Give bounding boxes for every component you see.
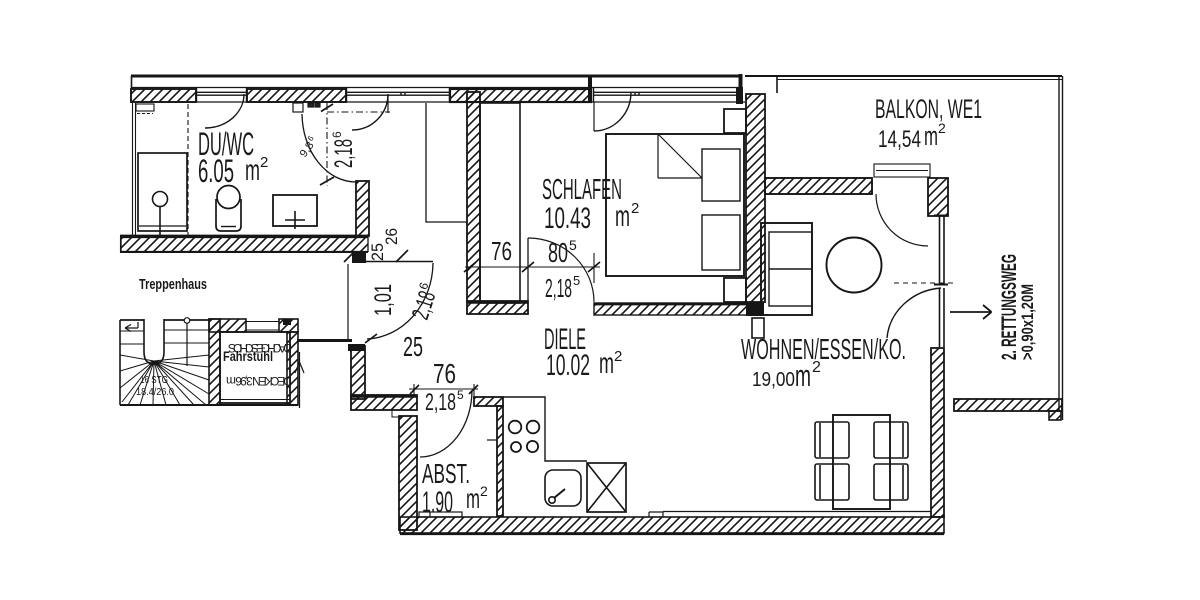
svg-text:10.02: 10.02 bbox=[546, 349, 590, 382]
svg-text:BALKON, WE1: BALKON, WE1 bbox=[875, 94, 982, 124]
svg-text:2,18: 2,18 bbox=[330, 139, 358, 168]
svg-text:2: 2 bbox=[812, 359, 821, 376]
svg-text:Treppenhaus: Treppenhaus bbox=[139, 276, 207, 293]
svg-text:2: 2 bbox=[631, 200, 639, 217]
svg-text:Fahrstuhl: Fahrstuhl bbox=[223, 348, 273, 364]
svg-text:>0,90x1,20M: >0,90x1,20M bbox=[1018, 284, 1037, 360]
svg-text:18.4/26.0: 18.4/26.0 bbox=[136, 387, 174, 398]
svg-text:2: 2 bbox=[480, 483, 488, 499]
svg-text:5: 5 bbox=[569, 237, 577, 253]
svg-text:76: 76 bbox=[433, 358, 456, 389]
svg-text:5: 5 bbox=[573, 273, 580, 288]
svg-text:ABST.: ABST. bbox=[422, 458, 470, 489]
svg-text:80: 80 bbox=[548, 237, 568, 268]
svg-text:1,01: 1,01 bbox=[370, 284, 397, 316]
svg-text:2: 2 bbox=[614, 348, 622, 365]
svg-text:2,18: 2,18 bbox=[545, 273, 572, 303]
svg-text:14,54: 14,54 bbox=[878, 126, 921, 153]
svg-text:1.90: 1.90 bbox=[422, 486, 453, 519]
svg-text:26: 26 bbox=[382, 228, 401, 245]
svg-text:6: 6 bbox=[330, 131, 344, 138]
svg-text:19,00: 19,00 bbox=[752, 369, 795, 391]
svg-text:m: m bbox=[615, 200, 630, 233]
svg-text:DECKEN 3,96 m: DECKEN 3,96 m bbox=[226, 374, 292, 388]
svg-text:2,18: 2,18 bbox=[425, 389, 456, 416]
svg-text:m: m bbox=[599, 347, 614, 380]
svg-text:m: m bbox=[466, 483, 480, 514]
svg-text:10.43: 10.43 bbox=[544, 202, 591, 235]
svg-text:5: 5 bbox=[457, 388, 464, 402]
svg-text:16 STG: 16 STG bbox=[140, 375, 168, 386]
svg-text:2: 2 bbox=[260, 154, 268, 171]
svg-text:m: m bbox=[924, 121, 938, 151]
svg-text:25: 25 bbox=[403, 331, 423, 362]
svg-text:76: 76 bbox=[491, 236, 512, 266]
svg-text:2: 2 bbox=[938, 120, 946, 136]
svg-text:m: m bbox=[795, 358, 811, 393]
svg-text:WOHNEN/ESSEN/KO.: WOHNEN/ESSEN/KO. bbox=[741, 334, 906, 366]
svg-text:m: m bbox=[245, 154, 260, 187]
svg-text:6.05: 6.05 bbox=[198, 153, 234, 189]
